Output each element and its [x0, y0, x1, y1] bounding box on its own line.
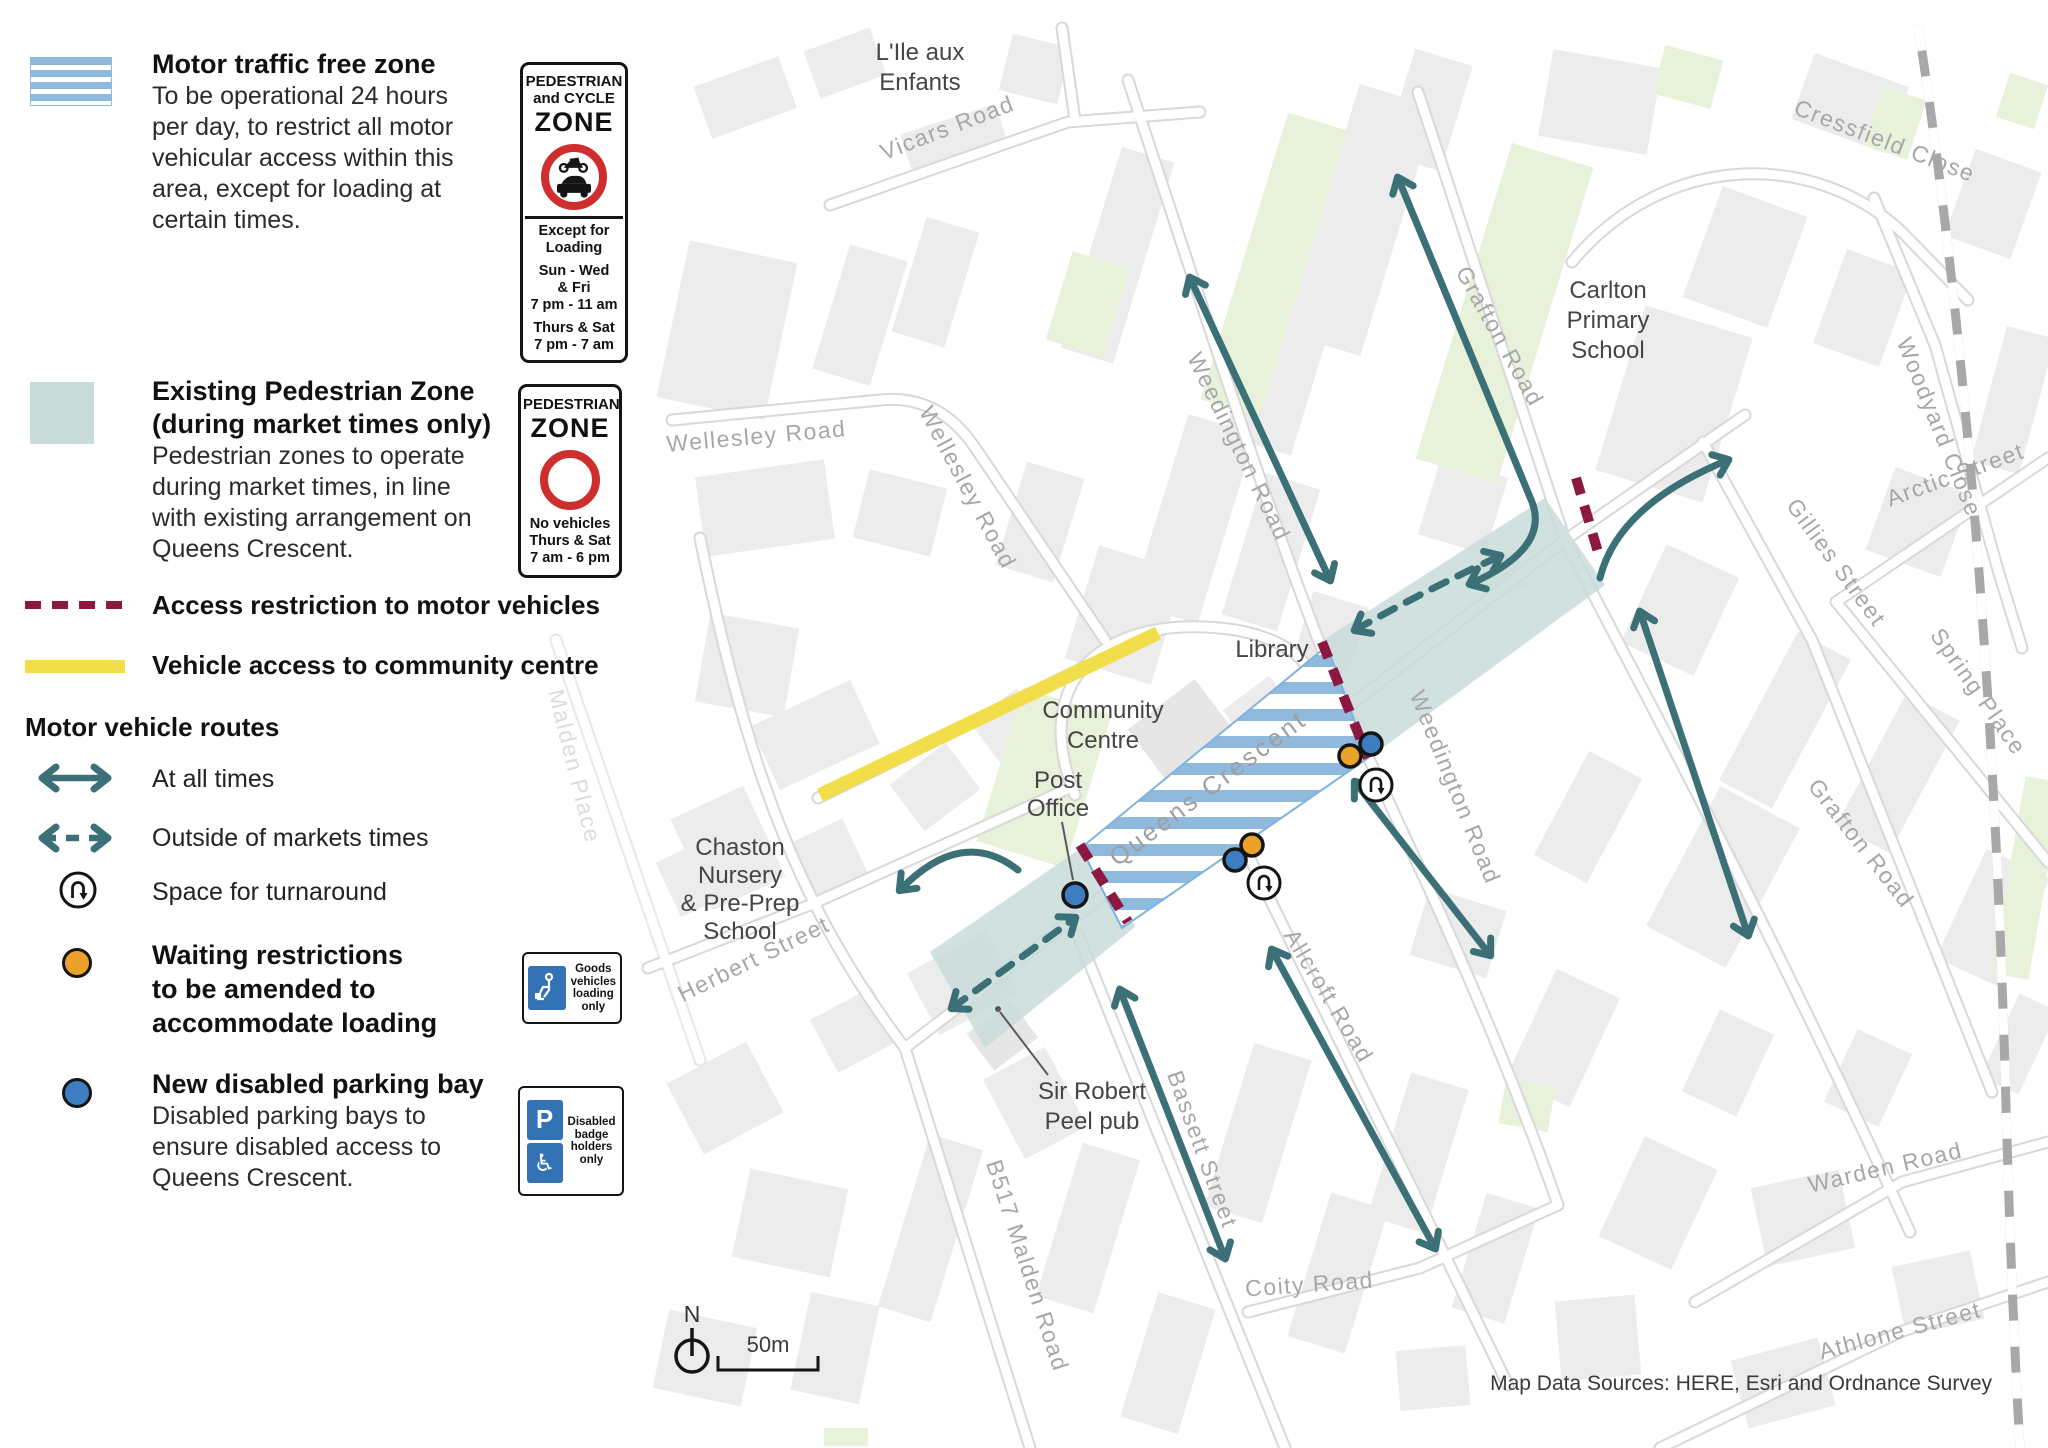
legend-label-waiting: to be amended to	[152, 972, 482, 1006]
pedestrian-cycle-zone-sign: PEDESTRIAN and CYCLE ZONE	[520, 62, 628, 363]
place-label: Sir Robert	[1038, 1078, 1146, 1105]
place-label: Office	[1027, 795, 1089, 822]
no-vehicles-icon	[540, 450, 600, 510]
sign-text: Sun - Wed	[525, 263, 623, 280]
parking-icon: P	[527, 1100, 563, 1140]
legend-panel: Motor traffic free zone To be operationa…	[0, 0, 660, 1448]
sign-text: 7 pm - 11 am	[525, 297, 623, 314]
legend-label-turnaround: Space for turnaround	[152, 878, 387, 907]
legend-text: Pedestrian zones to operate	[152, 441, 512, 472]
sign-text: PEDESTRIAN	[525, 73, 623, 90]
route-outside-markets-icon	[25, 815, 125, 866]
sign-text: Disabled	[568, 1116, 616, 1129]
pedestrian-zone-swatch	[30, 382, 94, 444]
place-label: Library	[1235, 636, 1308, 663]
pedestrian-zone-sign: PEDESTRIAN ZONE No vehicles Thurs & Sat …	[518, 384, 622, 578]
place-label: Peel pub	[1045, 1108, 1140, 1135]
no-motor-vehicles-icon	[541, 144, 607, 210]
legend-label-outside-markets: Outside of markets times	[152, 824, 428, 853]
vehicle-access-swatch	[25, 660, 125, 673]
legend-title-motor-zone: Motor traffic free zone	[152, 48, 502, 81]
sign-text: 7 am - 6 pm	[523, 550, 617, 567]
legend-text: certain times.	[152, 205, 502, 236]
sign-text: ZONE	[525, 107, 623, 138]
sign-text: Loading	[525, 240, 623, 257]
street-label: Athlone Street	[1816, 1296, 1984, 1364]
sign-text: 7 pm - 7 am	[525, 337, 623, 354]
sign-text: & Fri	[525, 280, 623, 297]
legend-text: per day, to restrict all motor	[152, 112, 502, 143]
waiting-restriction-swatch	[62, 948, 92, 978]
disabled-parking-dot	[1063, 883, 1087, 907]
place-label: School	[703, 918, 776, 945]
motor-traffic-free-zone-swatch	[30, 57, 112, 106]
waiting-restriction-dot	[1339, 745, 1361, 767]
wheelchair-icon: ♿	[527, 1143, 563, 1183]
legend-text: ensure disabled access to	[152, 1132, 512, 1163]
sign-text: and CYCLE	[525, 90, 623, 107]
route-at-all-times-icon	[25, 755, 125, 806]
sign-text: holders	[568, 1141, 616, 1154]
legend-label-access-restriction: Access restriction to motor vehicles	[152, 590, 600, 621]
sign-text: vehicles	[571, 976, 616, 989]
sign-text: No vehicles	[523, 516, 617, 533]
legend-text: To be operational 24 hours	[152, 81, 502, 112]
sign-text: Except for	[525, 223, 623, 240]
place-label: Enfants	[879, 69, 960, 96]
legend-title-disabled: New disabled parking bay	[152, 1068, 512, 1101]
sign-text: loading	[571, 988, 616, 1001]
sign-text: Goods	[571, 963, 616, 976]
place-label: Post	[1034, 767, 1082, 794]
legend-text: area, except for loading at	[152, 174, 502, 205]
legend-text: Queens Crescent.	[152, 1163, 512, 1194]
legend-label-vehicle-access: Vehicle access to community centre	[152, 650, 599, 681]
legend-title-ped-zone: Existing Pedestrian Zone	[152, 375, 512, 408]
legend-heading-routes: Motor vehicle routes	[25, 712, 279, 743]
place-label: Nursery	[698, 862, 782, 889]
scale-label: 50m	[747, 1332, 790, 1357]
legend-text: Disabled parking bays to	[152, 1101, 512, 1132]
sign-text: badge	[568, 1129, 616, 1142]
map-attribution: Map Data Sources: HERE, Esri and Ordnanc…	[1490, 1372, 1992, 1395]
north-label: N	[684, 1301, 701, 1327]
place-label: Carlton	[1569, 277, 1646, 304]
place-label: Community	[1042, 697, 1163, 724]
sign-text: PEDESTRIAN	[523, 396, 617, 413]
disabled-parking-dot	[1360, 733, 1382, 755]
turnaround-icon	[56, 868, 100, 917]
access-restriction-swatch	[25, 601, 125, 609]
sign-text: only	[571, 1001, 616, 1014]
sign-text: Thurs & Sat	[525, 320, 623, 337]
legend-label-at-all-times: At all times	[152, 765, 274, 794]
place-label: School	[1571, 337, 1644, 364]
legend-label-waiting: accommodate loading	[152, 1006, 482, 1040]
sign-text: only	[568, 1154, 616, 1167]
place-label: Centre	[1067, 727, 1139, 754]
legend-text: during market times, in line	[152, 472, 512, 503]
traffic-scheme-map-page: Vicars Road Cressfield Close Grafton Roa…	[0, 0, 2048, 1448]
legend-text: vehicular access within this	[152, 143, 502, 174]
disabled-parking-swatch	[62, 1078, 92, 1108]
legend-label-waiting: Waiting restrictions	[152, 938, 482, 972]
legend-text: Queens Crescent.	[152, 534, 512, 565]
sign-text: ZONE	[523, 413, 617, 444]
place-label: Primary	[1567, 307, 1650, 334]
legend-title-ped-zone: (during market times only)	[152, 408, 512, 441]
legend-text: with existing arrangement on	[152, 503, 512, 534]
place-label: L'Ile aux	[876, 39, 965, 66]
place-label: Chaston	[695, 834, 784, 861]
goods-vehicles-sign: Goods vehicles loading only	[522, 952, 622, 1024]
disabled-badge-sign: P ♿ Disabled badge holders only	[518, 1086, 624, 1196]
sign-text: Thurs & Sat	[523, 533, 617, 550]
disabled-parking-dot	[1224, 849, 1246, 871]
goods-loading-icon	[528, 966, 566, 1010]
place-label: & Pre-Prep	[681, 890, 800, 917]
